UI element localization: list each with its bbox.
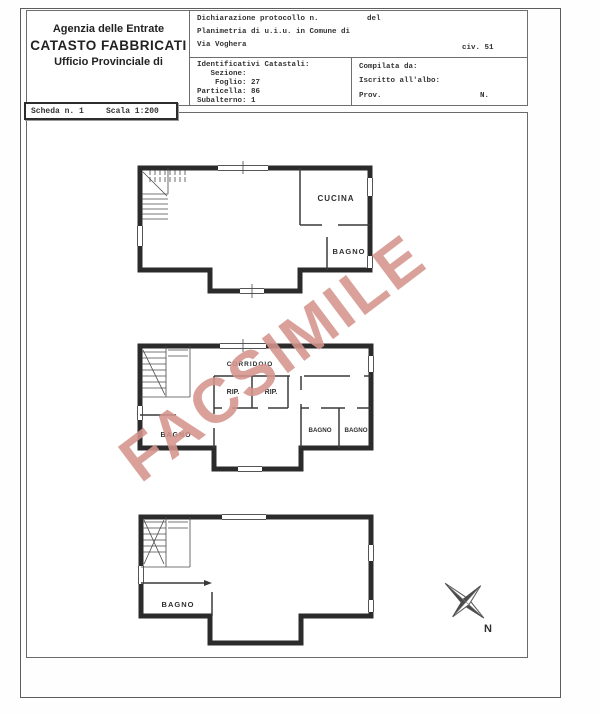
floor-plan-primo: CORRIDOIO RIP. RIP. BAGNO BAGNO BAGNO bbox=[130, 338, 386, 478]
s1-door-arrow bbox=[204, 580, 212, 586]
room-label-bagno-primo-left: BAGNO bbox=[160, 432, 191, 439]
room-label-cucina: CUCINA bbox=[317, 194, 354, 203]
compiler-n-label: N. bbox=[480, 92, 489, 102]
compiler-name-label: Compilata da: bbox=[359, 63, 418, 73]
declaration-planimetria-label: Planimetria di u.i.u. in Comune di bbox=[197, 28, 350, 38]
agency-header-box: Agenzia delle Entrate CATASTO FABBRICATI… bbox=[26, 10, 191, 106]
room-label-bagno-primo-mid: BAGNO bbox=[308, 427, 331, 434]
cadastral-subalterno: Subalterno: 1 bbox=[197, 97, 256, 107]
agency-line-2: CATASTO FABBRICATI bbox=[27, 38, 190, 53]
declaration-row: Dichiarazione protocollo n. del Planimet… bbox=[190, 11, 527, 58]
s1-interior-walls bbox=[141, 580, 212, 616]
compiler-box: Compilata da: Iscritto all'albo: Prov. N… bbox=[352, 58, 527, 105]
s1-outer-walls bbox=[141, 517, 371, 643]
declaration-protocol-label: Dichiarazione protocollo n. bbox=[197, 15, 319, 25]
compass-n-label: N bbox=[484, 623, 492, 635]
room-label-bagno-terra: BAGNO bbox=[333, 247, 366, 256]
cadastral-ids-box: Identificativi Catastali: Sezione: Fogli… bbox=[190, 58, 352, 105]
terra-windows bbox=[137, 161, 374, 298]
room-label-corridoio: CORRIDOIO bbox=[227, 361, 274, 368]
sheet-scale-label: Scala 1:200 bbox=[106, 107, 159, 117]
terra-stairs bbox=[142, 168, 185, 219]
floor-plan-terra: CUCINA BAGNO bbox=[130, 158, 386, 300]
room-label-rip1: RIP. bbox=[227, 389, 240, 396]
primo-windows bbox=[137, 339, 375, 473]
sheet-number-label: Scheda n. 1 bbox=[31, 107, 84, 117]
declaration-civic-label: civ. 51 bbox=[462, 44, 494, 54]
compiler-register-label: Iscritto all'albo: bbox=[359, 77, 440, 87]
sheet-scale-box: Scheda n. 1 Scala 1:200 bbox=[24, 102, 178, 120]
room-label-bagno-s1: BAGNO bbox=[162, 600, 195, 609]
terra-stairs-hatch bbox=[150, 170, 185, 182]
room-label-rip2: RIP. bbox=[265, 389, 278, 396]
terra-outer-walls bbox=[140, 168, 370, 291]
compiler-prov-label: Prov. bbox=[359, 92, 382, 102]
declaration-street-label: Via Voghera bbox=[197, 41, 247, 51]
declaration-header-box: Dichiarazione protocollo n. del Planimet… bbox=[189, 10, 528, 106]
primo-stairs bbox=[140, 346, 190, 397]
floor-plan-s1: BAGNO bbox=[130, 506, 386, 654]
document-page: Agenzia delle Entrate CATASTO FABBRICATI… bbox=[0, 0, 600, 714]
declaration-del-label: del bbox=[367, 15, 381, 25]
s1-stairs bbox=[141, 517, 190, 567]
agency-line-1: Agenzia delle Entrate bbox=[27, 23, 190, 35]
room-label-bagno-primo-right: BAGNO bbox=[344, 427, 367, 434]
compass-rose: N bbox=[436, 570, 516, 650]
agency-line-3: Ufficio Provinciale di bbox=[27, 56, 190, 68]
